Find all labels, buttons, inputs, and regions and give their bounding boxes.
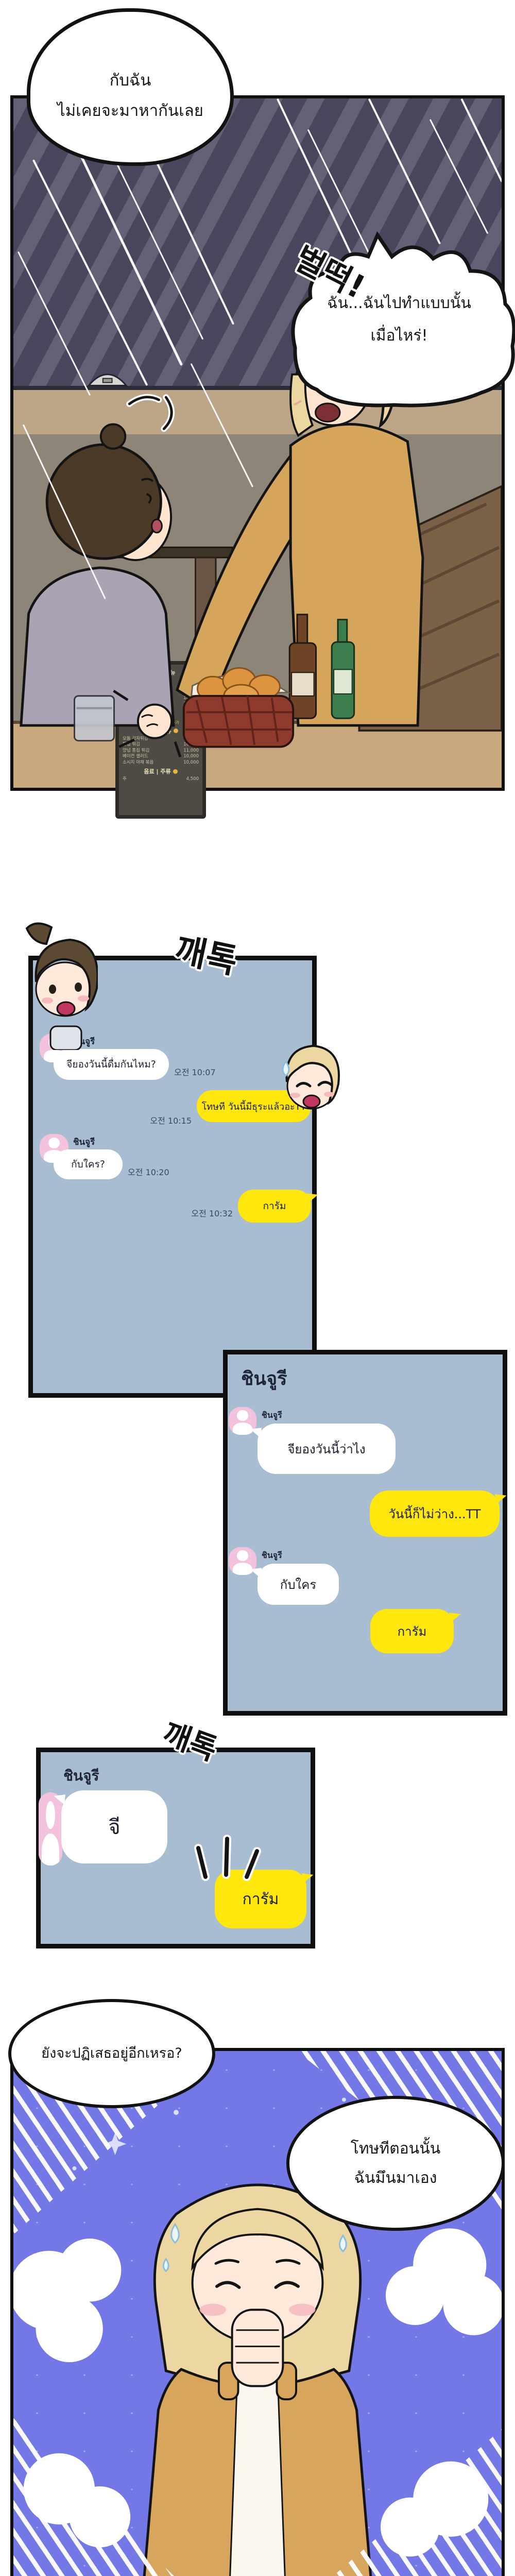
person-icon bbox=[46, 1801, 55, 1829]
speech-bubble-tease: ยังจะปฏิเสธอยู่อีกเหรอ? bbox=[8, 1999, 215, 2108]
speech-line: เมื่อไหร่! bbox=[294, 324, 505, 348]
person-icon bbox=[48, 1138, 60, 1148]
ceiling-lamp bbox=[89, 375, 126, 386]
chat-sender-name: ชินจูรี bbox=[262, 1549, 282, 1562]
speech-line: ฉัน...ฉันไปทำแบบนั้น bbox=[294, 291, 505, 315]
person-icon bbox=[42, 1834, 59, 1866]
chat-bubble-left: จี bbox=[61, 1790, 167, 1863]
chat-sender-name: ชินจูรี bbox=[262, 1409, 282, 1422]
speech-bubble-excuse: โทษทีตอนนั้น ฉันมึนมาเอง bbox=[286, 2096, 505, 2231]
chat-bubble-left: กับใคร bbox=[257, 1564, 339, 1605]
chat-bubble-right: การัม bbox=[238, 1190, 311, 1223]
speech-line: ฉันมึนมาเอง bbox=[354, 2167, 437, 2190]
speech-line: ยังจะปฏิเสธอยู่อีกเหรอ? bbox=[41, 2043, 182, 2063]
chibi-blonde-head bbox=[280, 1035, 347, 1120]
person-icon bbox=[237, 1410, 248, 1421]
chat-bubble-right: การัม bbox=[370, 1609, 454, 1653]
blonde-girl bbox=[143, 2185, 372, 2576]
chat-bubble-left: จียองวันนี้ว่าไง bbox=[257, 1423, 396, 1474]
speech-line: กับฉัน bbox=[110, 69, 151, 92]
chat-sender-name: ชินจูรี bbox=[73, 1135, 95, 1149]
emphasis-strokes bbox=[194, 1829, 261, 1881]
speech-bubble-retort: ฉัน...ฉันไปทำแบบนั้น เมื่อไหร่! bbox=[294, 291, 505, 348]
chat-bubble-right: วันนี้ก็ไม่ว่าง...TT bbox=[370, 1490, 500, 1537]
webtoon-page: 메인 메뉴 후라이드 치킨15,000 허니 치킨16,000 양념 치킨16,… bbox=[0, 0, 515, 2576]
chat-timestamp: 오전 10:32 bbox=[171, 1207, 233, 1219]
chat-bubble-left: จียองวันนี้ดื่มกันไหม? bbox=[54, 1049, 169, 1080]
speech-line: โทษทีตอนนั้น bbox=[351, 2138, 440, 2160]
chat-screenshot-3: ชินจูรี จี การัม bbox=[36, 1748, 315, 1948]
chat-bubble-left: กับใคร? bbox=[54, 1149, 123, 1179]
panel-restaurant-argument: 메인 메뉴 후라이드 치킨15,000 허니 치킨16,000 양념 치킨16,… bbox=[10, 95, 505, 791]
speech-line: ไม่เคยจะมาหากันเลย bbox=[57, 99, 203, 123]
chat-timestamp: 오전 10:20 bbox=[128, 1165, 169, 1178]
glass-cup bbox=[75, 696, 114, 741]
chat-screenshot-2: ชินจูรี ชินจูรี จียองวันนี้ว่าไง วันนี้ก… bbox=[223, 1350, 507, 1716]
flinch-strokes bbox=[129, 397, 171, 429]
speech-bubble-accuse: กับฉัน ไม่เคยจะมาหากันเลย bbox=[27, 8, 234, 166]
chibi-brunette-head bbox=[21, 916, 98, 1050]
chat-timestamp: 오전 10:07 bbox=[174, 1065, 216, 1078]
person-icon bbox=[237, 1550, 248, 1561]
chat-sender-name: ชินจูรี bbox=[63, 1765, 99, 1787]
chat-timestamp: 오전 10:15 bbox=[135, 1114, 192, 1126]
restaurant-scene-art bbox=[13, 98, 502, 788]
chat-room-header: ชินจูรี bbox=[241, 1364, 287, 1393]
